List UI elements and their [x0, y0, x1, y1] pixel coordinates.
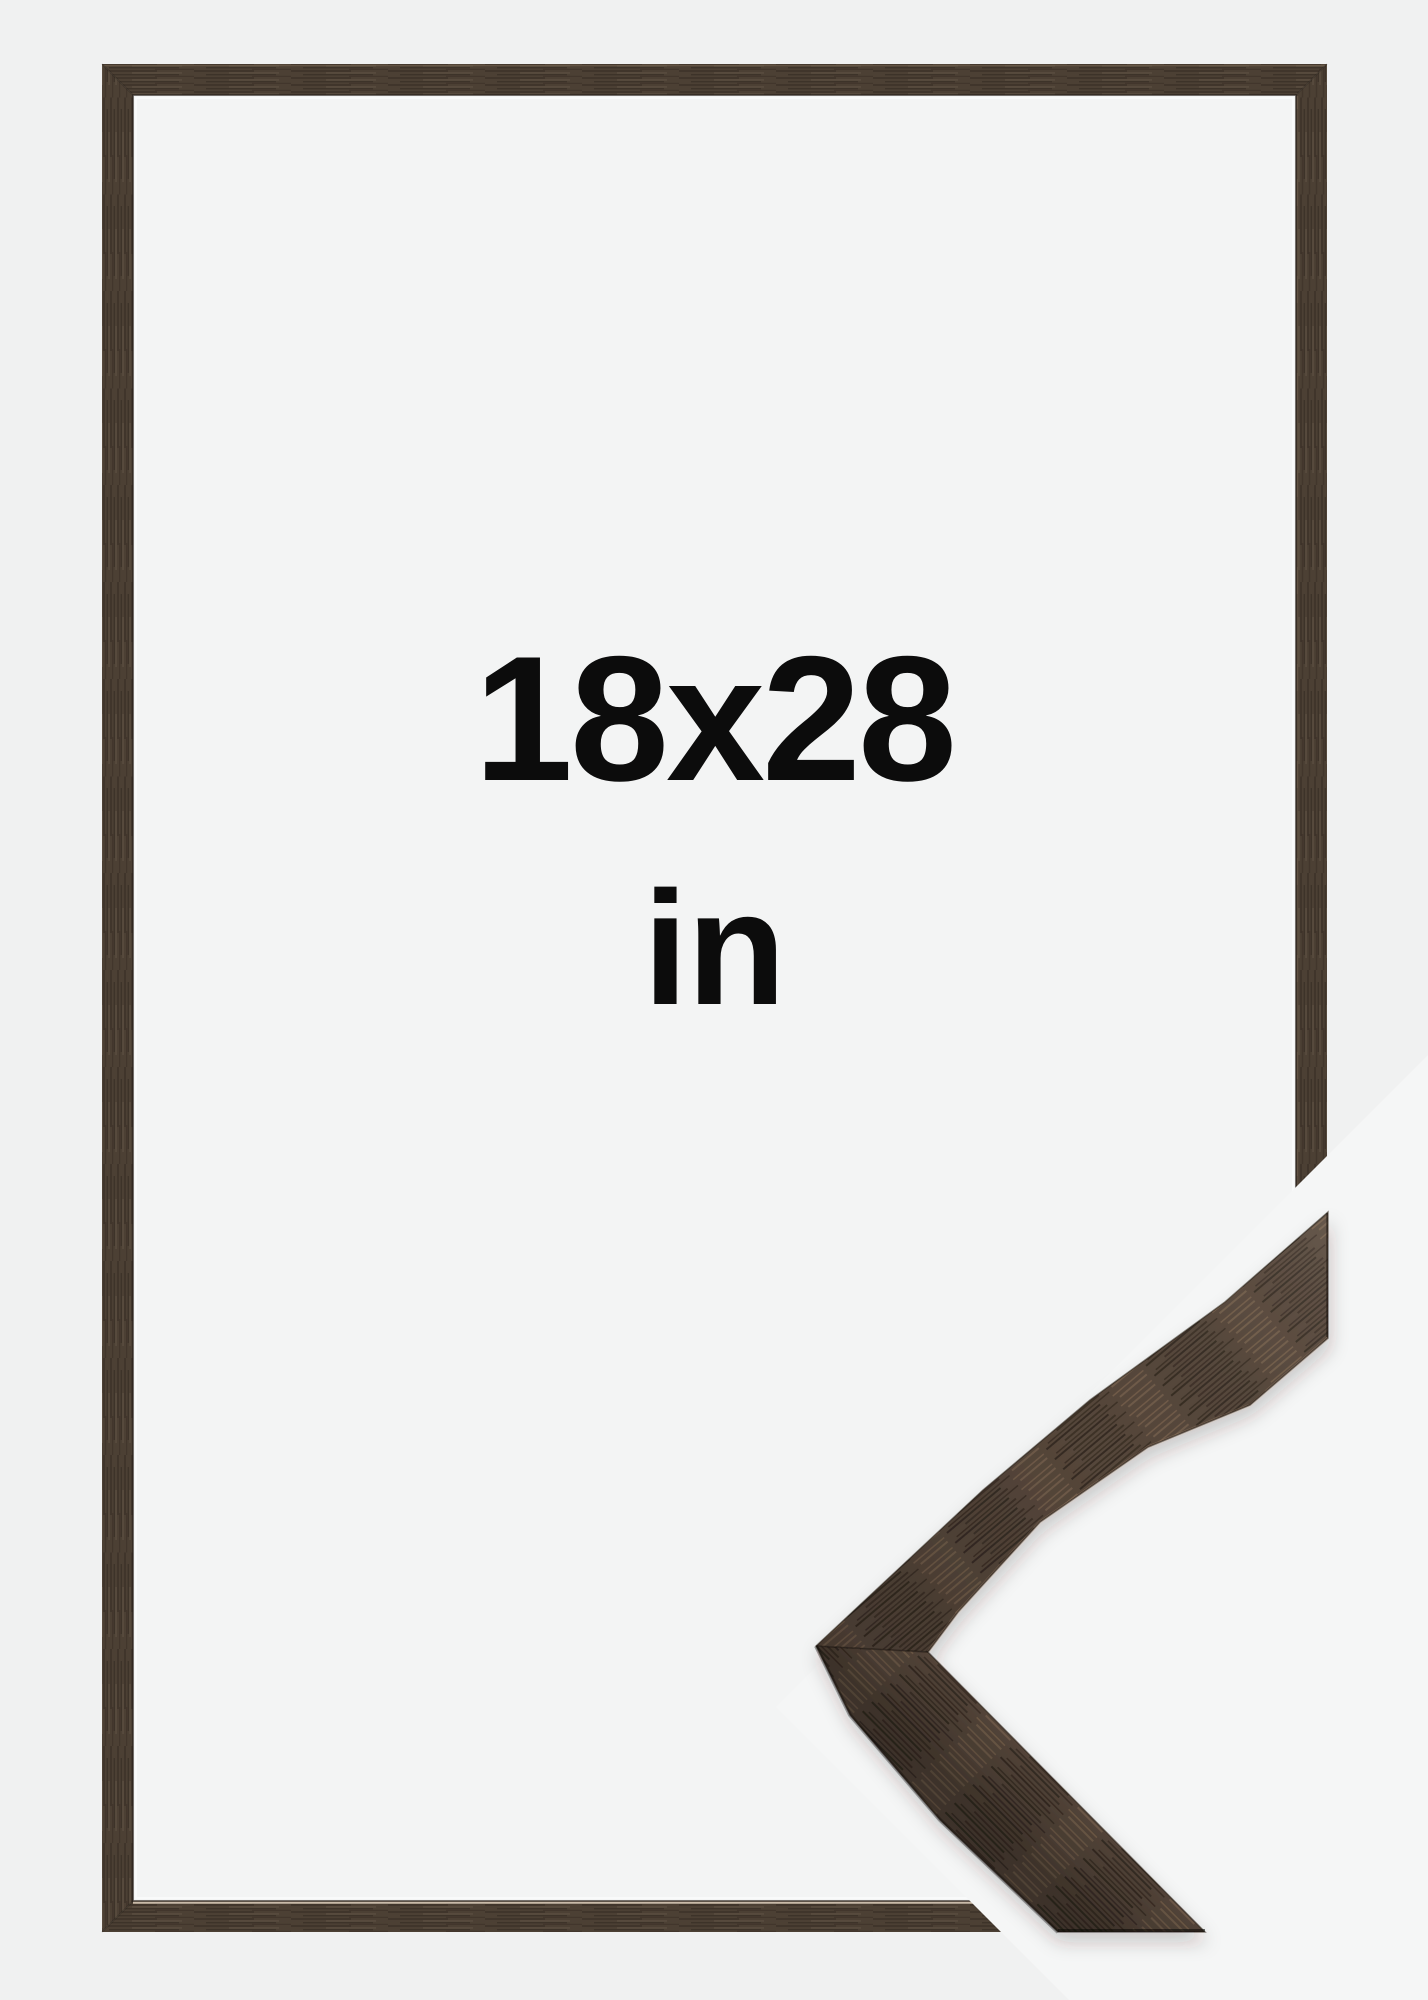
size-dimensions-text: 18x28 — [0, 612, 1428, 826]
frame-top-bar — [102, 64, 1327, 95]
product-image: 18x28 in — [0, 0, 1428, 2000]
size-unit-text: in — [0, 852, 1428, 1046]
